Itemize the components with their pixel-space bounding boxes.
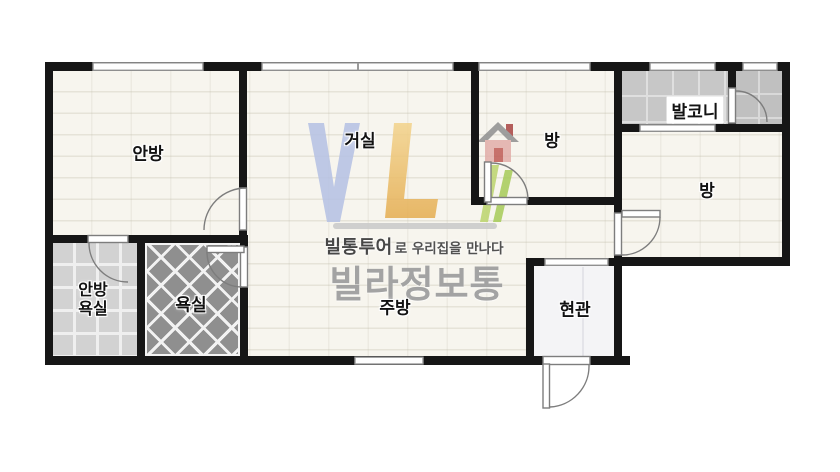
wall [614, 124, 790, 132]
room-label-bathroom: 욕실 [175, 291, 206, 316]
room-label-master-bedroom: 안방 [132, 140, 163, 165]
door-leaf [543, 364, 550, 408]
wall [526, 258, 622, 266]
room-label-master-bathroom-line2: 욕실 [78, 299, 107, 318]
wall [728, 62, 736, 132]
watermark-brand: 빌라정보통 [329, 254, 504, 308]
wall [137, 243, 145, 356]
wall [239, 62, 247, 237]
room-label-living-room: 거실 [344, 127, 375, 152]
wall [782, 62, 790, 266]
room-label-balcony: 발코니 [667, 97, 724, 124]
wall [240, 235, 248, 356]
wall [45, 62, 53, 365]
wall [45, 235, 248, 243]
watermark-logo [298, 115, 542, 233]
room-label-master-bathroom-line1: 안방 [78, 280, 107, 299]
logo-underline [333, 223, 497, 229]
wall [614, 62, 622, 356]
house-icon [477, 122, 519, 162]
wall [526, 258, 534, 356]
room-label-entrance: 현관 [559, 296, 590, 321]
room-label-room-top: 방 [544, 127, 560, 152]
wall [471, 62, 479, 205]
room-label-kitchen: 주방 [379, 294, 410, 319]
utility-floor [736, 71, 782, 124]
room-label-room-right: 방 [699, 177, 715, 202]
logo-letter-l [385, 123, 438, 218]
room-label-master-bathroom: 안방 욕실 [78, 280, 107, 318]
wall [45, 356, 630, 365]
wall [471, 197, 622, 205]
wall [614, 257, 790, 266]
wall [45, 62, 790, 71]
floor-plan: 빌통투어로 우리집을 만나다 빌라정보통 [0, 0, 840, 472]
door-arc [550, 365, 589, 407]
